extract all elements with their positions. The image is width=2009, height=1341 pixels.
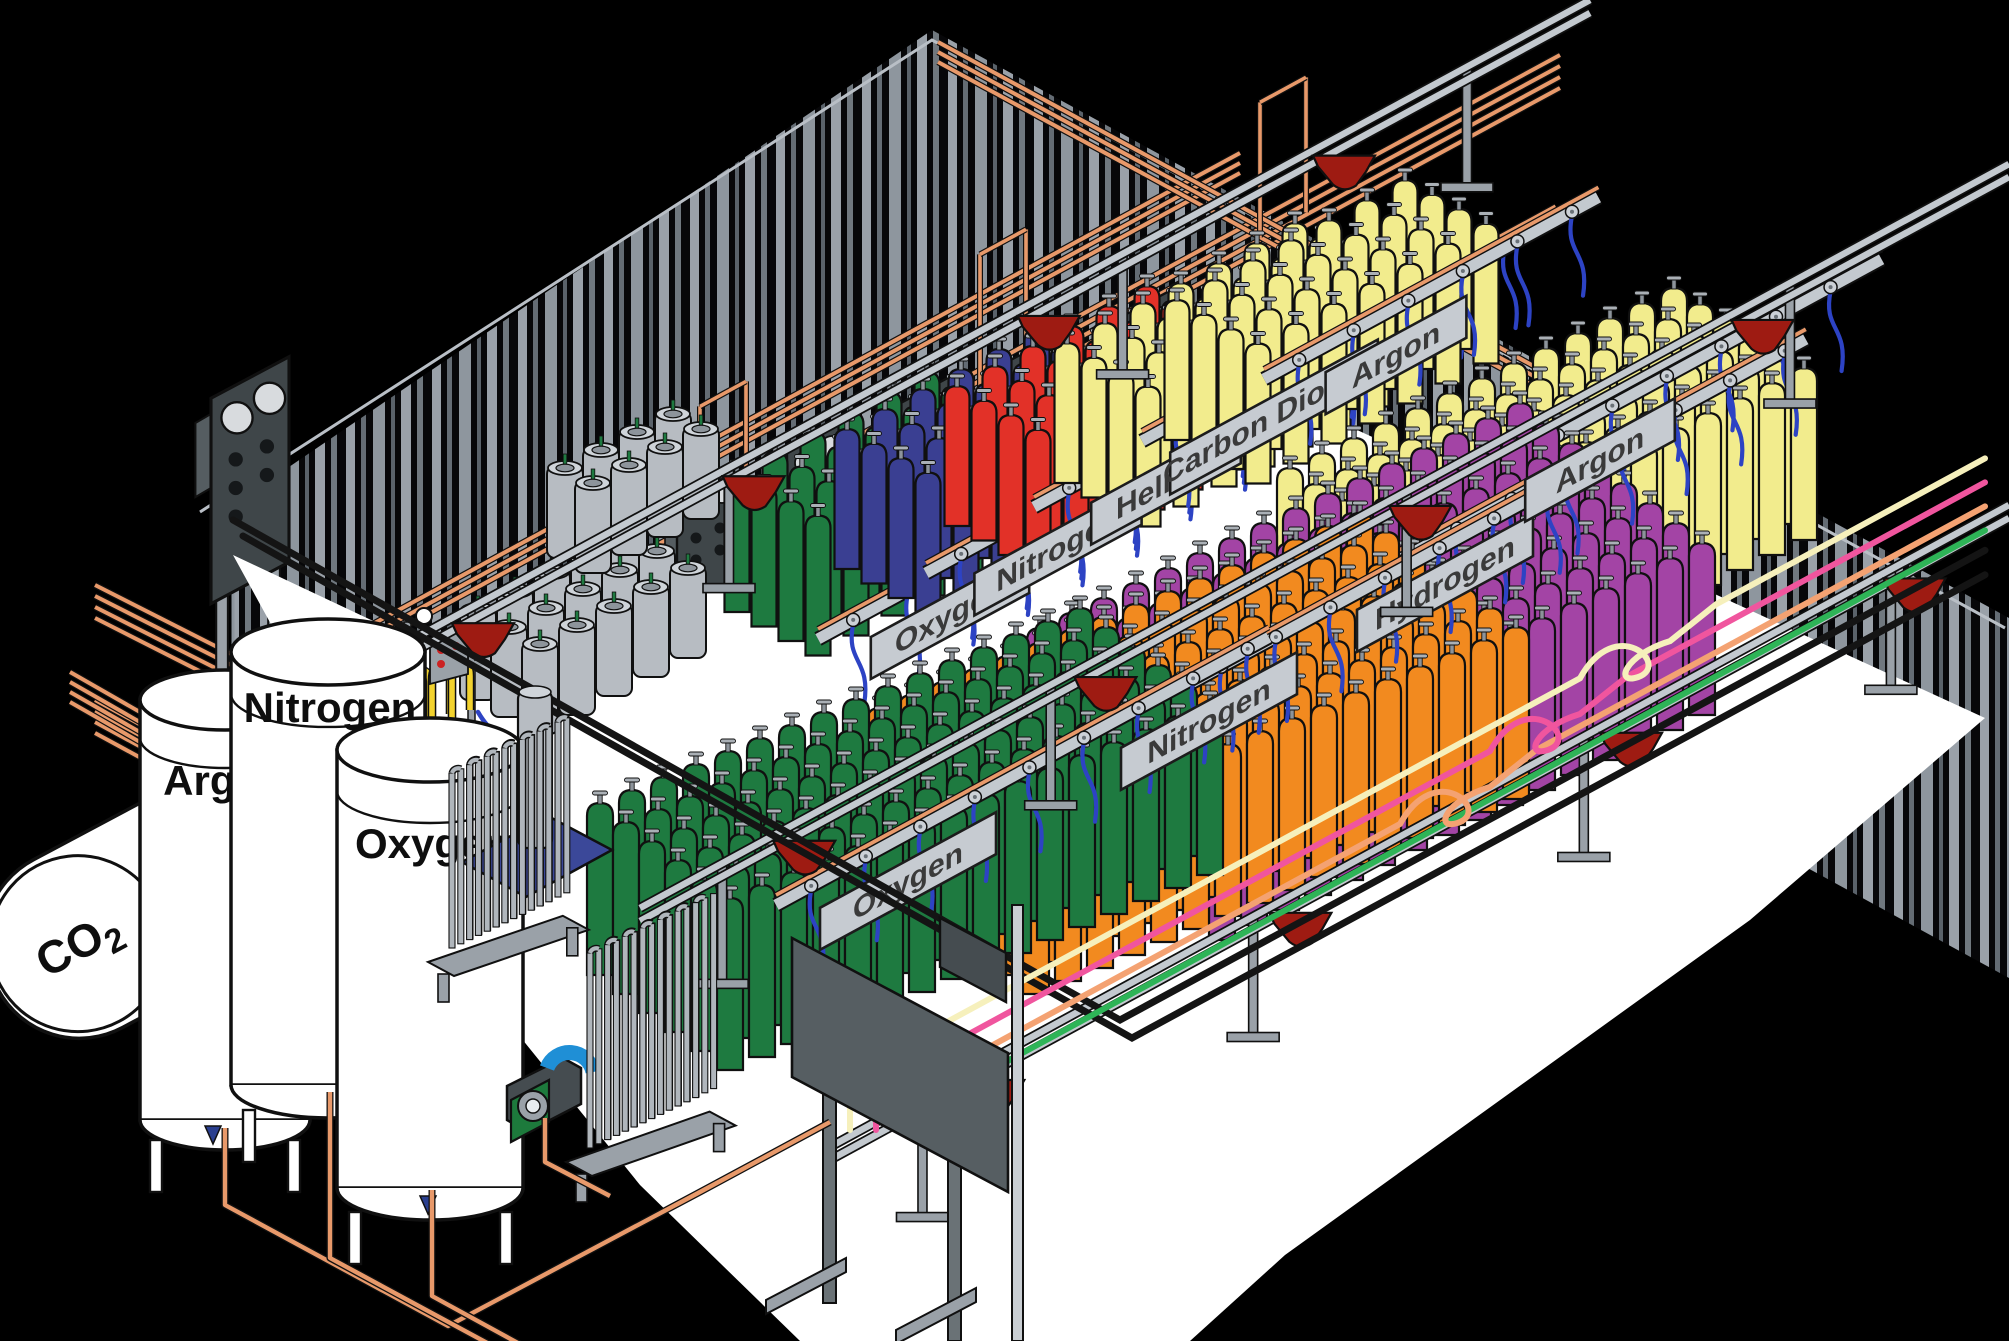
cylinder-valve-stem — [955, 378, 959, 387]
cylinder-valve — [843, 719, 858, 723]
cylinder-valve-stem — [1202, 307, 1206, 316]
cylinder-valve-stem — [894, 793, 898, 802]
cylinder-valve-stem — [1392, 207, 1396, 216]
cylinder-valve — [837, 751, 852, 755]
cylinder-valve-stem — [1674, 515, 1678, 524]
cylinder-valve-stem — [1293, 215, 1297, 224]
cylinder-valve — [1475, 366, 1490, 370]
dewar-valve — [563, 454, 567, 464]
cylinder-valve-stem — [1384, 524, 1388, 533]
cylinder-valve-stem — [880, 710, 884, 719]
indicator-light — [437, 660, 445, 668]
cylinder-valve-stem — [1770, 375, 1774, 384]
cylinder-valve — [1733, 386, 1748, 390]
cylinder-valve-stem — [1514, 590, 1518, 599]
cylinder-valve-stem — [1668, 550, 1672, 559]
valve-hub — [918, 825, 922, 829]
cylinder-valve — [721, 739, 736, 743]
cylinder-valve-stem — [1448, 385, 1452, 394]
vaporizer-fin — [605, 945, 611, 1140]
cylinder-valve-stem — [1034, 677, 1038, 686]
cylinder-valve-stem — [1365, 192, 1369, 201]
tank-leg — [288, 1140, 300, 1192]
cylinder-valve-stem — [1002, 690, 1006, 699]
cylinder-valve-stem — [899, 450, 903, 459]
cylinder-valve — [1669, 511, 1684, 515]
vaporizer-fin — [631, 932, 637, 1127]
dewar-valve — [575, 611, 579, 621]
cylinder-valve — [1311, 243, 1326, 247]
vaporizer-fin — [622, 936, 628, 1131]
cylinder-valve-stem — [938, 716, 942, 725]
cylinder-valve-stem — [1251, 252, 1255, 261]
valve-hub — [1352, 328, 1356, 332]
cylinder-valve-stem — [1610, 545, 1614, 554]
dewar-neck — [605, 602, 623, 610]
cylinder-valve — [945, 648, 960, 652]
cylinder-valve-stem — [1506, 465, 1510, 474]
vaporizer-fin — [493, 752, 499, 927]
cylinder-valve-stem — [1538, 371, 1542, 380]
gas-cylinder — [1055, 343, 1080, 483]
tank-leg — [243, 1110, 255, 1162]
panel-port — [691, 533, 702, 544]
cylinder-valve-stem — [1570, 356, 1574, 365]
cylinder-valve-stem — [714, 807, 718, 816]
cylinder-valve-stem — [1327, 212, 1331, 221]
cylinder-valve — [1425, 183, 1440, 187]
gas-cylinder — [835, 429, 860, 569]
cylinder-valve — [1398, 168, 1413, 172]
cylinder-valve — [1123, 624, 1138, 628]
dewar-neck — [642, 583, 660, 591]
cylinder-valve-stem — [758, 730, 762, 739]
cylinder-valve-stem — [1538, 450, 1542, 459]
cylinder-valve — [1017, 737, 1032, 741]
dewar-neck — [692, 425, 710, 433]
cylinder-valve-stem — [1290, 710, 1294, 719]
valve-hub — [1191, 676, 1195, 680]
cylinder-valve-stem — [1145, 278, 1149, 287]
cylinder-valve — [1643, 400, 1658, 404]
rail-support-foot — [1227, 1033, 1279, 1042]
cylinder-valve — [977, 635, 992, 639]
cylinder-valve-stem — [1512, 355, 1516, 364]
cylinder-valve — [1695, 531, 1710, 535]
gas-cylinder — [999, 415, 1024, 555]
gas-cylinder — [1343, 692, 1369, 864]
cylinder-valve-stem — [728, 890, 732, 899]
cylinder-valve — [901, 725, 916, 729]
dewar-neck — [679, 564, 697, 572]
cylinder-valve — [1365, 272, 1380, 276]
vaporizer-fin — [467, 765, 473, 940]
cylinder-valve-stem — [1358, 470, 1362, 479]
cylinder-valve — [1347, 426, 1362, 430]
cylinder-valve — [1441, 232, 1456, 236]
cylinder-valve — [1509, 586, 1524, 590]
cylinder-valve — [1469, 476, 1484, 480]
cylinder-valve-stem — [1238, 672, 1242, 681]
cylinder-valve — [1663, 546, 1678, 550]
dewar-neck — [656, 443, 674, 451]
cylinder-valve — [773, 777, 788, 781]
cylinder-valve — [1655, 338, 1670, 342]
cylinder-valve-stem — [1386, 671, 1390, 680]
cylinder-valve-stem — [1584, 525, 1588, 534]
cylinder-valve-stem — [1305, 281, 1309, 290]
dewar-valve — [635, 418, 639, 428]
cylinder-valve — [883, 821, 898, 825]
cylinder-valve — [1373, 442, 1388, 446]
cylinder-valve — [1297, 642, 1312, 646]
cylinder-valve-stem — [1419, 221, 1423, 230]
cylinder-valve — [1469, 397, 1484, 401]
cylinder-valve-stem — [1112, 734, 1116, 743]
cylinder-valve — [799, 796, 814, 800]
cylinder-valve-stem — [752, 762, 756, 771]
cylinder-valve — [1161, 556, 1176, 560]
cylinder-valve — [619, 810, 634, 814]
vaporizer-fin — [564, 718, 570, 893]
cylinder-valve — [1098, 311, 1113, 315]
vaporizer-fin — [475, 760, 481, 935]
cylinder-valve — [1675, 385, 1690, 389]
cylinder-valve-stem — [624, 814, 628, 823]
cylinder-valve — [1321, 514, 1336, 518]
cylinder-valve — [1349, 223, 1364, 227]
gas-cylinder — [877, 833, 903, 1005]
cylinder-valve — [1289, 496, 1304, 500]
cylinder-valve-stem — [1262, 544, 1266, 553]
dewar-valve — [686, 554, 690, 564]
cylinder-valve-stem — [650, 833, 654, 842]
rail-support-foot — [703, 584, 755, 593]
cylinder-valve-stem — [970, 703, 974, 712]
cylinder-valve-stem — [910, 416, 914, 425]
cylinder-valve — [811, 504, 826, 508]
cylinder-valve — [1413, 654, 1428, 658]
cylinder-valve-stem — [848, 723, 852, 732]
valve-hub — [959, 552, 963, 556]
cylinder-valve — [1341, 457, 1356, 461]
dewar-valve — [538, 630, 542, 640]
cylinder-valve — [1174, 271, 1189, 275]
liquid-dewar — [596, 604, 632, 696]
cylinder-valve-stem — [1698, 296, 1702, 305]
dewar-neck — [648, 547, 666, 555]
cylinder-valve — [863, 770, 878, 774]
cylinder-valve — [1322, 208, 1337, 212]
cylinder-valve-stem — [1558, 505, 1562, 514]
cylinder-valve-stem — [862, 806, 866, 815]
cylinder-valve-stem — [1175, 292, 1179, 301]
cylinder-valve — [1797, 356, 1812, 360]
cylinder-valve — [715, 771, 730, 775]
cylinder-valve-stem — [959, 361, 963, 370]
cylinder-valve-stem — [598, 795, 602, 804]
cylinder-valve — [1193, 541, 1208, 545]
cylinder-valve — [1015, 369, 1030, 373]
vaporizer-fin — [511, 744, 517, 919]
cylinder-valve — [971, 667, 986, 671]
gas-cylinder — [1311, 705, 1337, 877]
cylinder-valve-stem — [1572, 595, 1576, 604]
cylinder-valve — [1081, 711, 1096, 715]
cylinder-valve-stem — [1289, 232, 1293, 241]
cylinder-valve — [677, 816, 692, 820]
tank-leg — [500, 1212, 512, 1264]
cylinder-valve-stem — [1134, 596, 1138, 605]
cylinder-valve — [1360, 188, 1375, 192]
cylinder-valve-stem — [1416, 400, 1420, 409]
valve-hub — [809, 884, 813, 888]
cylinder-valve — [1136, 291, 1151, 295]
cylinder-valve-stem — [1078, 600, 1082, 609]
cylinder-valve — [689, 752, 704, 756]
cylinder-valve-stem — [1544, 340, 1548, 349]
cylinder-valve-stem — [708, 839, 712, 848]
gas-cylinder — [862, 444, 887, 584]
dewar-valve — [663, 433, 667, 443]
cylinder-valve — [1443, 381, 1458, 385]
cylinder-valve-stem — [842, 755, 846, 764]
dewar-neck — [611, 566, 629, 574]
cylinder-valve-stem — [784, 749, 788, 758]
vaporizer-fin — [458, 769, 464, 944]
cylinder-valve-stem — [1378, 556, 1382, 565]
valve-hub — [1137, 706, 1141, 710]
dewar-valve — [507, 613, 511, 623]
cylinder-valve-stem — [1706, 405, 1710, 414]
cylinder-valve-stem — [1640, 295, 1644, 304]
cylinder-valve — [1667, 276, 1682, 280]
rail-support-foot — [1764, 399, 1816, 408]
valve-hub — [1665, 374, 1669, 378]
cylinder-valve-stem — [1326, 518, 1330, 527]
cylinder-valve — [1353, 501, 1368, 505]
tank-top — [231, 619, 425, 685]
vaporizer-fin — [519, 739, 525, 914]
cylinder-valve-stem — [1198, 545, 1202, 554]
rail-support-foot — [1441, 183, 1493, 192]
cylinder-valve-stem — [1230, 557, 1234, 566]
cylinder-valve-stem — [1186, 634, 1190, 643]
cylinder-valve-stem — [944, 684, 948, 693]
cylinder-valve — [1250, 231, 1265, 235]
cylinder-valve — [1262, 297, 1277, 301]
dewar-neck — [620, 461, 638, 469]
cylinder-valve — [1119, 666, 1134, 670]
gas-cylinder — [972, 401, 997, 541]
pallet-leg — [567, 928, 578, 956]
cylinder-valve — [1501, 382, 1516, 386]
cylinder-valve — [1637, 526, 1652, 530]
cylinder-valve-stem — [1604, 580, 1608, 589]
cylinder-valve — [1009, 622, 1024, 626]
cylinder-valve-stem — [1008, 658, 1012, 667]
dewar-valve — [699, 415, 703, 425]
cylinder-valve — [1541, 571, 1556, 575]
cylinder-valve-stem — [1198, 570, 1202, 579]
cylinder-valve — [1571, 321, 1586, 325]
cylinder-valve-stem — [827, 473, 831, 482]
cylinder-valve-stem — [1666, 311, 1670, 320]
cylinder-valve — [869, 738, 884, 742]
cylinder-valve — [1539, 336, 1554, 340]
vaporizer-fin — [711, 894, 717, 1089]
cylinder-valve-stem — [1072, 632, 1076, 641]
valve-hub — [973, 795, 977, 799]
liquid-dewar — [670, 566, 706, 658]
cylinder-valve-stem — [1213, 272, 1217, 281]
cylinder-valve-stem — [1141, 295, 1145, 304]
cylinder-valve-stem — [1480, 370, 1484, 379]
cylinder-valve — [1035, 641, 1050, 645]
cylinder-valve — [1535, 606, 1550, 610]
dewar-valve — [544, 594, 548, 604]
cylinder-valve-stem — [1322, 697, 1326, 706]
cylinder-valve — [1591, 368, 1606, 372]
cylinder-valve-stem — [1179, 275, 1183, 284]
cylinder-valve — [1212, 251, 1227, 255]
cylinder-valve-stem — [1446, 236, 1450, 245]
cylinder-valve-stem — [886, 678, 890, 687]
valve-hub — [1728, 378, 1732, 382]
cylinder-valve-stem — [1442, 495, 1446, 504]
cylinder-valve-stem — [1020, 373, 1024, 382]
cylinder-valve-stem — [1352, 430, 1356, 439]
cylinder-valve-stem — [1156, 657, 1160, 666]
cylinder-valve-stem — [1506, 386, 1510, 395]
dewar-valve — [581, 575, 585, 585]
cylinder-valve — [1327, 292, 1342, 296]
cylinder-valve-stem — [1408, 256, 1412, 265]
cylinder-valve-stem — [1014, 626, 1018, 635]
cylinder-valve — [1381, 667, 1396, 671]
valve-hub — [1570, 210, 1574, 214]
panel-side-tab — [195, 414, 211, 497]
cylinder-valve — [784, 489, 799, 493]
valve-hub — [864, 854, 868, 858]
cylinder-valve-stem — [1229, 321, 1233, 330]
cylinder-valve-stem — [790, 717, 794, 726]
vaporizer-fin — [649, 924, 655, 1119]
panel-port — [260, 468, 274, 482]
dewar-neck — [537, 604, 555, 612]
cylinder-valve-stem — [1092, 350, 1096, 359]
dewar-valve — [599, 436, 603, 446]
compressor-inlet-core — [526, 1099, 540, 1113]
cylinder-valve-stem — [1384, 415, 1388, 424]
cylinder-valve — [755, 873, 770, 877]
cylinder-valve — [1097, 586, 1112, 590]
cylinder-valve-stem — [1482, 632, 1486, 641]
cylinder-valve-stem — [1332, 296, 1336, 305]
cylinder-valve — [1567, 591, 1582, 595]
gauge — [221, 402, 252, 433]
tank-leg — [349, 1212, 361, 1264]
cylinder-valve — [1213, 617, 1228, 621]
cylinder-valve-stem — [822, 704, 826, 713]
liquid-dewar — [633, 585, 669, 677]
cylinder-valve-stem — [1636, 565, 1640, 574]
cylinder-valve — [1411, 471, 1426, 475]
cylinder-valve — [1067, 628, 1082, 632]
cylinder-valve — [1203, 691, 1218, 695]
cylinder-valve — [894, 446, 909, 450]
cylinder-valve-stem — [1354, 684, 1358, 693]
cylinder-valve — [645, 829, 660, 833]
cylinder-valve — [1635, 291, 1650, 295]
vaporizer-fin — [596, 949, 602, 1144]
cylinder-valve — [1225, 553, 1240, 557]
cylinder-valve — [811, 732, 826, 736]
vaporizer-fin — [684, 907, 690, 1102]
cylinder-valve — [741, 790, 756, 794]
valve-hub — [1297, 358, 1301, 362]
cylinder-valve-stem — [720, 775, 724, 784]
cylinder-valve — [1687, 323, 1702, 327]
cylinder-valve — [1449, 421, 1464, 425]
rail-support-foot — [1097, 370, 1149, 379]
dewar-neck — [568, 621, 586, 629]
cylinder-valve — [795, 455, 810, 459]
cylinder-valve — [1170, 288, 1185, 292]
vaporizer-fin — [449, 773, 455, 948]
cylinder-valve-stem — [1166, 583, 1170, 592]
valve-hub — [1461, 269, 1465, 273]
dewar-valve — [649, 573, 653, 583]
cylinder-valve — [1139, 717, 1154, 721]
cylinder-valve-stem — [982, 393, 986, 402]
cylinder-valve-stem — [1102, 590, 1106, 599]
cylinder-valve-stem — [1047, 387, 1051, 396]
cylinder-valve-stem — [1390, 455, 1394, 464]
cylinder-valve-stem — [1454, 425, 1458, 434]
cylinder-valve — [1507, 351, 1522, 355]
liquid-dewar — [559, 623, 595, 715]
dewar-valve — [612, 592, 616, 602]
cylinder-valve — [1161, 579, 1176, 583]
cylinder-valve — [1513, 391, 1528, 395]
cylinder-valve — [1603, 306, 1618, 310]
cylinder-valve-stem — [1144, 721, 1148, 730]
cylinder-valve — [1353, 466, 1368, 470]
cylinder-valve-stem — [976, 671, 980, 680]
cylinder-valve-stem — [906, 729, 910, 738]
cylinder-valve — [1533, 367, 1548, 371]
cylinder-valve-stem — [816, 508, 820, 517]
cylinder-valve — [1257, 540, 1272, 544]
cylinder-valve — [805, 764, 820, 768]
cylinder-valve — [1004, 403, 1019, 407]
cylinder-valve-stem — [1217, 255, 1221, 264]
cylinder-valve-stem — [872, 436, 876, 445]
cylinder-valve-stem — [1130, 330, 1134, 339]
cylinder-valve-stem — [1608, 310, 1612, 319]
cylinder-valve-stem — [1590, 490, 1594, 499]
gauge — [254, 383, 285, 414]
cylinder-valve-stem — [982, 639, 986, 648]
cylinder-valve — [1289, 527, 1304, 531]
cylinder-valve — [1309, 578, 1324, 582]
cylinder-valve — [913, 661, 928, 665]
cylinder-valve — [1629, 322, 1644, 326]
cylinder-valve-stem — [1616, 419, 1620, 428]
cylinder-valve — [1481, 406, 1496, 410]
cylinder-valve-stem — [1267, 301, 1271, 310]
